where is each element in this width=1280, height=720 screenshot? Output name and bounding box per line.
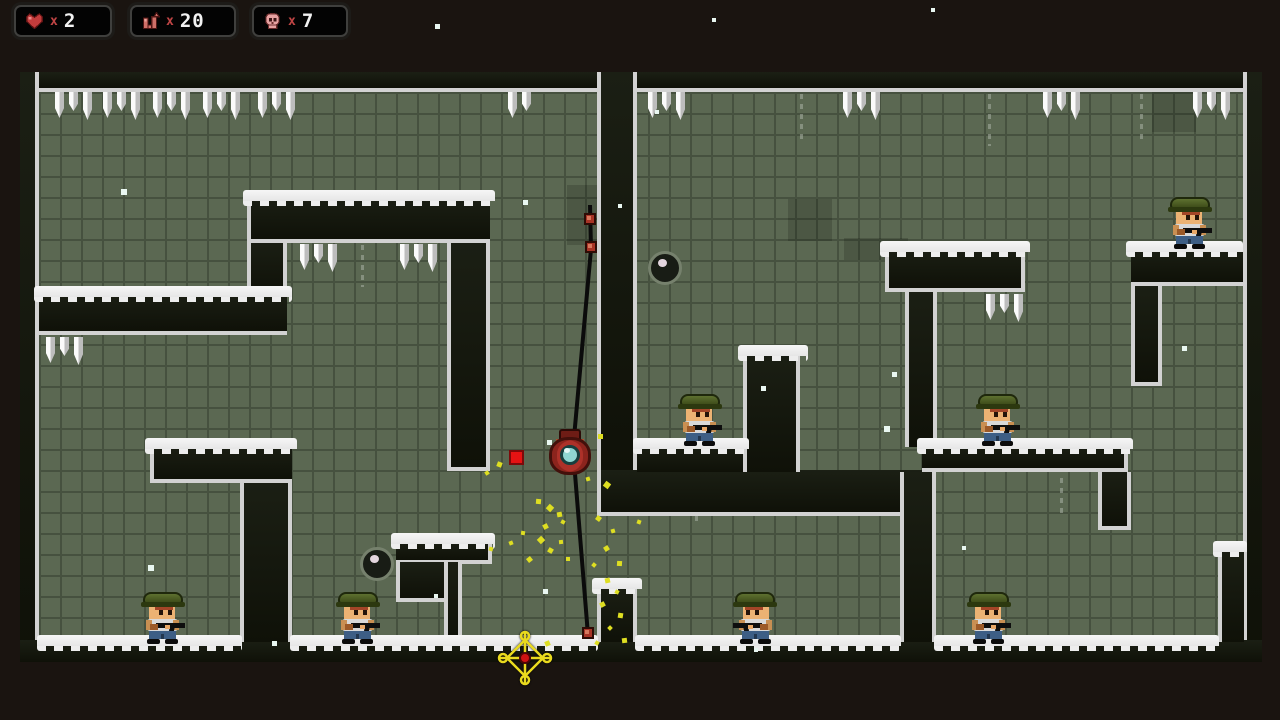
icicle xyxy=(662,92,671,111)
icicle xyxy=(328,244,337,272)
icicle xyxy=(414,244,423,263)
snow-particle xyxy=(435,24,440,29)
soldier-boot xyxy=(1174,244,1187,249)
snow-particle xyxy=(523,200,528,205)
icicle xyxy=(203,92,212,118)
soldier-eye xyxy=(159,610,163,615)
icicle xyxy=(46,337,55,363)
icicle xyxy=(676,92,685,120)
icicle-group xyxy=(46,337,83,365)
icicle-group xyxy=(103,92,140,120)
soldier-eye xyxy=(363,610,367,615)
soldier-boot xyxy=(360,639,373,644)
wall-wall-bottom-mid xyxy=(900,472,936,642)
heart-icon xyxy=(25,12,44,31)
icicle xyxy=(258,92,267,118)
snow-particle xyxy=(754,648,758,652)
gun-icon xyxy=(141,12,160,31)
soldier-boot xyxy=(684,441,697,446)
icicle xyxy=(103,92,112,118)
wall-outer-left xyxy=(20,72,39,662)
soldier-eye xyxy=(705,412,709,417)
icicle-group xyxy=(300,244,337,272)
icicle xyxy=(217,92,226,111)
yellow-particle xyxy=(566,557,570,561)
snow-particle xyxy=(884,426,890,432)
icicle xyxy=(286,92,295,120)
soldier-boot xyxy=(702,441,715,446)
ammo-multiplier: x xyxy=(166,14,174,29)
wall-u-tower xyxy=(743,352,800,472)
player-eye-shine xyxy=(564,448,570,453)
soldier-rifle-stock xyxy=(1177,229,1185,235)
soldier-rifle-stock xyxy=(687,426,695,432)
icicle xyxy=(1014,294,1023,322)
yellow-particle xyxy=(605,578,611,584)
soldier-pants-gap xyxy=(356,634,359,639)
enemies-counter: x 7 xyxy=(252,5,348,37)
soldier-pants-gap xyxy=(698,436,701,441)
soldier-eye xyxy=(746,610,750,615)
icicle xyxy=(648,92,657,118)
knob-highlight xyxy=(587,216,591,220)
soldier-eye xyxy=(985,610,989,615)
icicle xyxy=(1221,92,1230,120)
soldier-eye xyxy=(696,412,700,417)
yellow-particle xyxy=(557,512,563,518)
tile-background xyxy=(39,92,1243,641)
icicle xyxy=(117,92,126,111)
icicle xyxy=(181,92,190,120)
soldier-pants-gap xyxy=(987,634,990,639)
wall-stair-col xyxy=(444,562,462,642)
snow-particle xyxy=(618,204,622,208)
rope-knob xyxy=(585,241,597,253)
wall-leg-topright xyxy=(1131,286,1162,386)
lives-value: 2 xyxy=(64,10,76,32)
soldier-boot xyxy=(1192,244,1205,249)
snow-cap xyxy=(34,286,292,302)
icicle-group xyxy=(203,92,240,120)
soldier-rifle-stock xyxy=(760,624,768,630)
icicle xyxy=(522,92,531,111)
wall-divider-top xyxy=(597,72,637,472)
snow-particle xyxy=(547,440,552,445)
bomb-highlight xyxy=(658,259,667,267)
icicle-group xyxy=(400,244,437,272)
bomb-highlight xyxy=(370,555,379,563)
snow-cap xyxy=(880,241,1030,257)
soldier-eye xyxy=(755,610,759,615)
snow-cap xyxy=(738,345,808,361)
soldier-boot xyxy=(147,639,160,644)
soldier-boot xyxy=(991,639,1004,644)
icicle xyxy=(1071,92,1080,120)
knob-highlight xyxy=(588,244,592,248)
soldier-rifle-stock xyxy=(976,624,984,630)
snow-cap xyxy=(1213,541,1247,557)
snow-particle xyxy=(121,189,127,195)
snow-particle xyxy=(1182,346,1187,351)
icicle xyxy=(857,92,866,111)
icicle xyxy=(400,244,409,270)
soldier-pants-gap xyxy=(161,634,164,639)
game-viewport[interactable]: x 2 x 20 x xyxy=(0,0,1280,720)
soldier-eye xyxy=(168,610,172,615)
snow-cap xyxy=(145,438,297,454)
soldier-hand xyxy=(748,625,753,629)
icicle-group xyxy=(508,92,531,118)
yellow-particle xyxy=(618,613,624,619)
snow-particle xyxy=(892,372,897,377)
icicle xyxy=(508,92,517,118)
icicle-group xyxy=(1193,92,1230,120)
icicle xyxy=(231,92,240,120)
icicle-group xyxy=(1043,92,1080,120)
icicle-group xyxy=(648,92,685,120)
wall-block-bottomright xyxy=(1218,548,1244,642)
crack-decoration xyxy=(1060,478,1063,518)
wall-leg-topleft xyxy=(447,243,490,471)
soldier-eye xyxy=(1186,215,1190,220)
lives-counter: x 2 xyxy=(14,5,112,37)
soldier-pants-gap xyxy=(1188,239,1191,244)
enemy-soldier xyxy=(678,394,722,446)
icicle xyxy=(428,244,437,272)
dark-tile-patch xyxy=(788,199,832,241)
yellow-particle xyxy=(536,499,541,504)
icicle xyxy=(272,92,281,111)
bomb xyxy=(360,547,394,581)
wall-u-bottom xyxy=(597,470,936,516)
soldier-hand xyxy=(1192,230,1197,234)
enemy-soldier xyxy=(976,394,1020,446)
wall-col-right-top xyxy=(905,290,937,447)
soldier-eye xyxy=(994,412,998,417)
icicle-group xyxy=(843,92,880,120)
snow-particle xyxy=(761,386,766,391)
enemy-soldier xyxy=(141,592,185,644)
icicle xyxy=(1207,92,1216,111)
yellow-particle xyxy=(617,561,622,566)
bomb xyxy=(648,251,682,285)
wall-leg-right-mid xyxy=(1098,472,1131,530)
icicle xyxy=(83,92,92,120)
crack-decoration xyxy=(988,94,991,146)
icicle xyxy=(314,244,323,263)
snow-particle xyxy=(543,589,548,594)
snow-particle xyxy=(434,594,438,598)
crack-decoration xyxy=(1140,94,1143,140)
soldier-hand xyxy=(1000,427,1005,431)
player-eye xyxy=(560,445,580,465)
soldier-rifle-stock xyxy=(985,426,993,432)
crack-decoration xyxy=(361,245,364,287)
soldier-hand xyxy=(360,625,365,629)
soldier-hand xyxy=(991,625,996,629)
snow-particle xyxy=(931,8,935,12)
icicle-group xyxy=(258,92,295,120)
crack-decoration xyxy=(800,94,803,142)
icicle xyxy=(871,92,880,120)
soldier-hand xyxy=(165,625,170,629)
soldier-pants-gap xyxy=(996,436,999,441)
enemy-soldier xyxy=(1168,197,1212,249)
yellow-particle xyxy=(622,638,628,644)
icicle xyxy=(167,92,176,111)
projectile xyxy=(509,450,524,465)
icicle-group xyxy=(55,92,92,120)
snow-cap xyxy=(917,438,1133,454)
snow-cap xyxy=(243,190,495,206)
ammo-value: 20 xyxy=(180,10,205,32)
skull-icon xyxy=(263,12,282,31)
snow-particle xyxy=(148,565,154,571)
rope-knob xyxy=(582,627,594,639)
yellow-particle xyxy=(521,531,526,536)
icicle xyxy=(986,294,995,320)
icicle xyxy=(300,244,309,270)
snow-particle xyxy=(712,18,716,22)
wall-leg-bottomleft xyxy=(240,483,292,642)
icicle xyxy=(1043,92,1052,118)
soldier-eye xyxy=(1195,215,1199,220)
soldier-rifle-stock xyxy=(345,624,353,630)
snow-particle xyxy=(962,546,966,550)
soldier-boot xyxy=(758,639,771,644)
enemy-soldier xyxy=(733,592,777,644)
wall-outer-top xyxy=(20,72,1262,92)
enemy-soldier xyxy=(967,592,1011,644)
enemy-soldier xyxy=(336,592,380,644)
soldier-eye xyxy=(1003,412,1007,417)
soldier-boot xyxy=(982,441,995,446)
soldier-boot xyxy=(342,639,355,644)
dark-tile-patch xyxy=(1152,92,1196,132)
icicle xyxy=(843,92,852,118)
soldier-boot xyxy=(740,639,753,644)
icicle xyxy=(74,337,83,365)
icicle xyxy=(69,92,78,111)
soldier-eye xyxy=(994,610,998,615)
soldier-boot xyxy=(1000,441,1013,446)
knob-highlight xyxy=(585,630,589,634)
snow-cap xyxy=(391,533,495,549)
enemies-value: 7 xyxy=(302,10,314,32)
ammo-counter: x 20 xyxy=(130,5,236,37)
soldier-pants-gap xyxy=(754,634,757,639)
icicle-group xyxy=(986,294,1023,322)
snow-particle xyxy=(272,641,277,646)
icicle xyxy=(1057,92,1066,111)
soldier-boot xyxy=(165,639,178,644)
icicle xyxy=(1193,92,1202,118)
soldier-rifle-stock xyxy=(150,624,158,630)
soldier-eye xyxy=(354,610,358,615)
icicle xyxy=(55,92,64,118)
yellow-particle xyxy=(598,434,603,439)
snow-cap xyxy=(37,635,242,651)
icicle xyxy=(131,92,140,120)
player-ball xyxy=(548,429,592,477)
icicle xyxy=(153,92,162,118)
icicle-group xyxy=(153,92,190,120)
rope-knob xyxy=(584,213,596,225)
soldier-hand xyxy=(702,427,707,431)
soldier-boot xyxy=(973,639,986,644)
wall-outer-right xyxy=(1243,72,1262,662)
snow-particle xyxy=(655,110,659,114)
lives-multiplier: x xyxy=(50,14,58,29)
icicle xyxy=(60,337,69,356)
enemies-multiplier: x xyxy=(288,14,296,29)
icicle xyxy=(1000,294,1009,313)
yellow-particle xyxy=(559,540,563,544)
